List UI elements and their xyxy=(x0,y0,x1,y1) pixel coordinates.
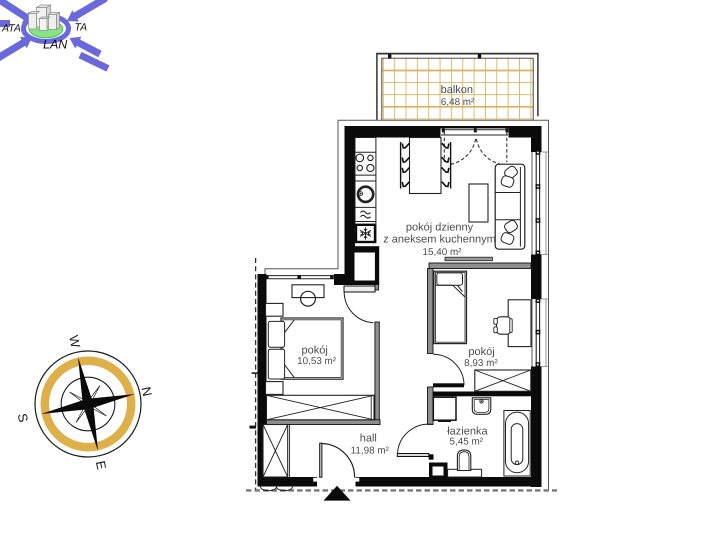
svg-text:pokój: pokój xyxy=(302,345,328,357)
svg-text:pokój: pokój xyxy=(468,346,494,358)
svg-text:8,93 m²: 8,93 m² xyxy=(464,358,498,369)
svg-text:hall: hall xyxy=(360,433,377,445)
svg-text:TA: TA xyxy=(75,22,88,34)
svg-text:S: S xyxy=(15,412,32,424)
svg-text:6,48 m²: 6,48 m² xyxy=(441,97,475,108)
svg-text:15,40 m²: 15,40 m² xyxy=(423,247,463,258)
svg-text:LAN: LAN xyxy=(43,38,68,52)
svg-text:W: W xyxy=(66,334,83,350)
svg-text:E: E xyxy=(93,459,110,471)
svg-text:N: N xyxy=(138,385,155,397)
svg-text:balkon: balkon xyxy=(441,84,473,96)
svg-text:10,53 m²: 10,53 m² xyxy=(297,356,337,367)
svg-text:11,98 m²: 11,98 m² xyxy=(351,445,390,456)
svg-text:z aneksem kuchennym: z aneksem kuchennym xyxy=(383,234,496,246)
svg-text:ATA: ATA xyxy=(1,23,21,35)
svg-text:pokój dzienny: pokój dzienny xyxy=(406,222,474,234)
svg-text:5,45 m²: 5,45 m² xyxy=(450,436,484,447)
